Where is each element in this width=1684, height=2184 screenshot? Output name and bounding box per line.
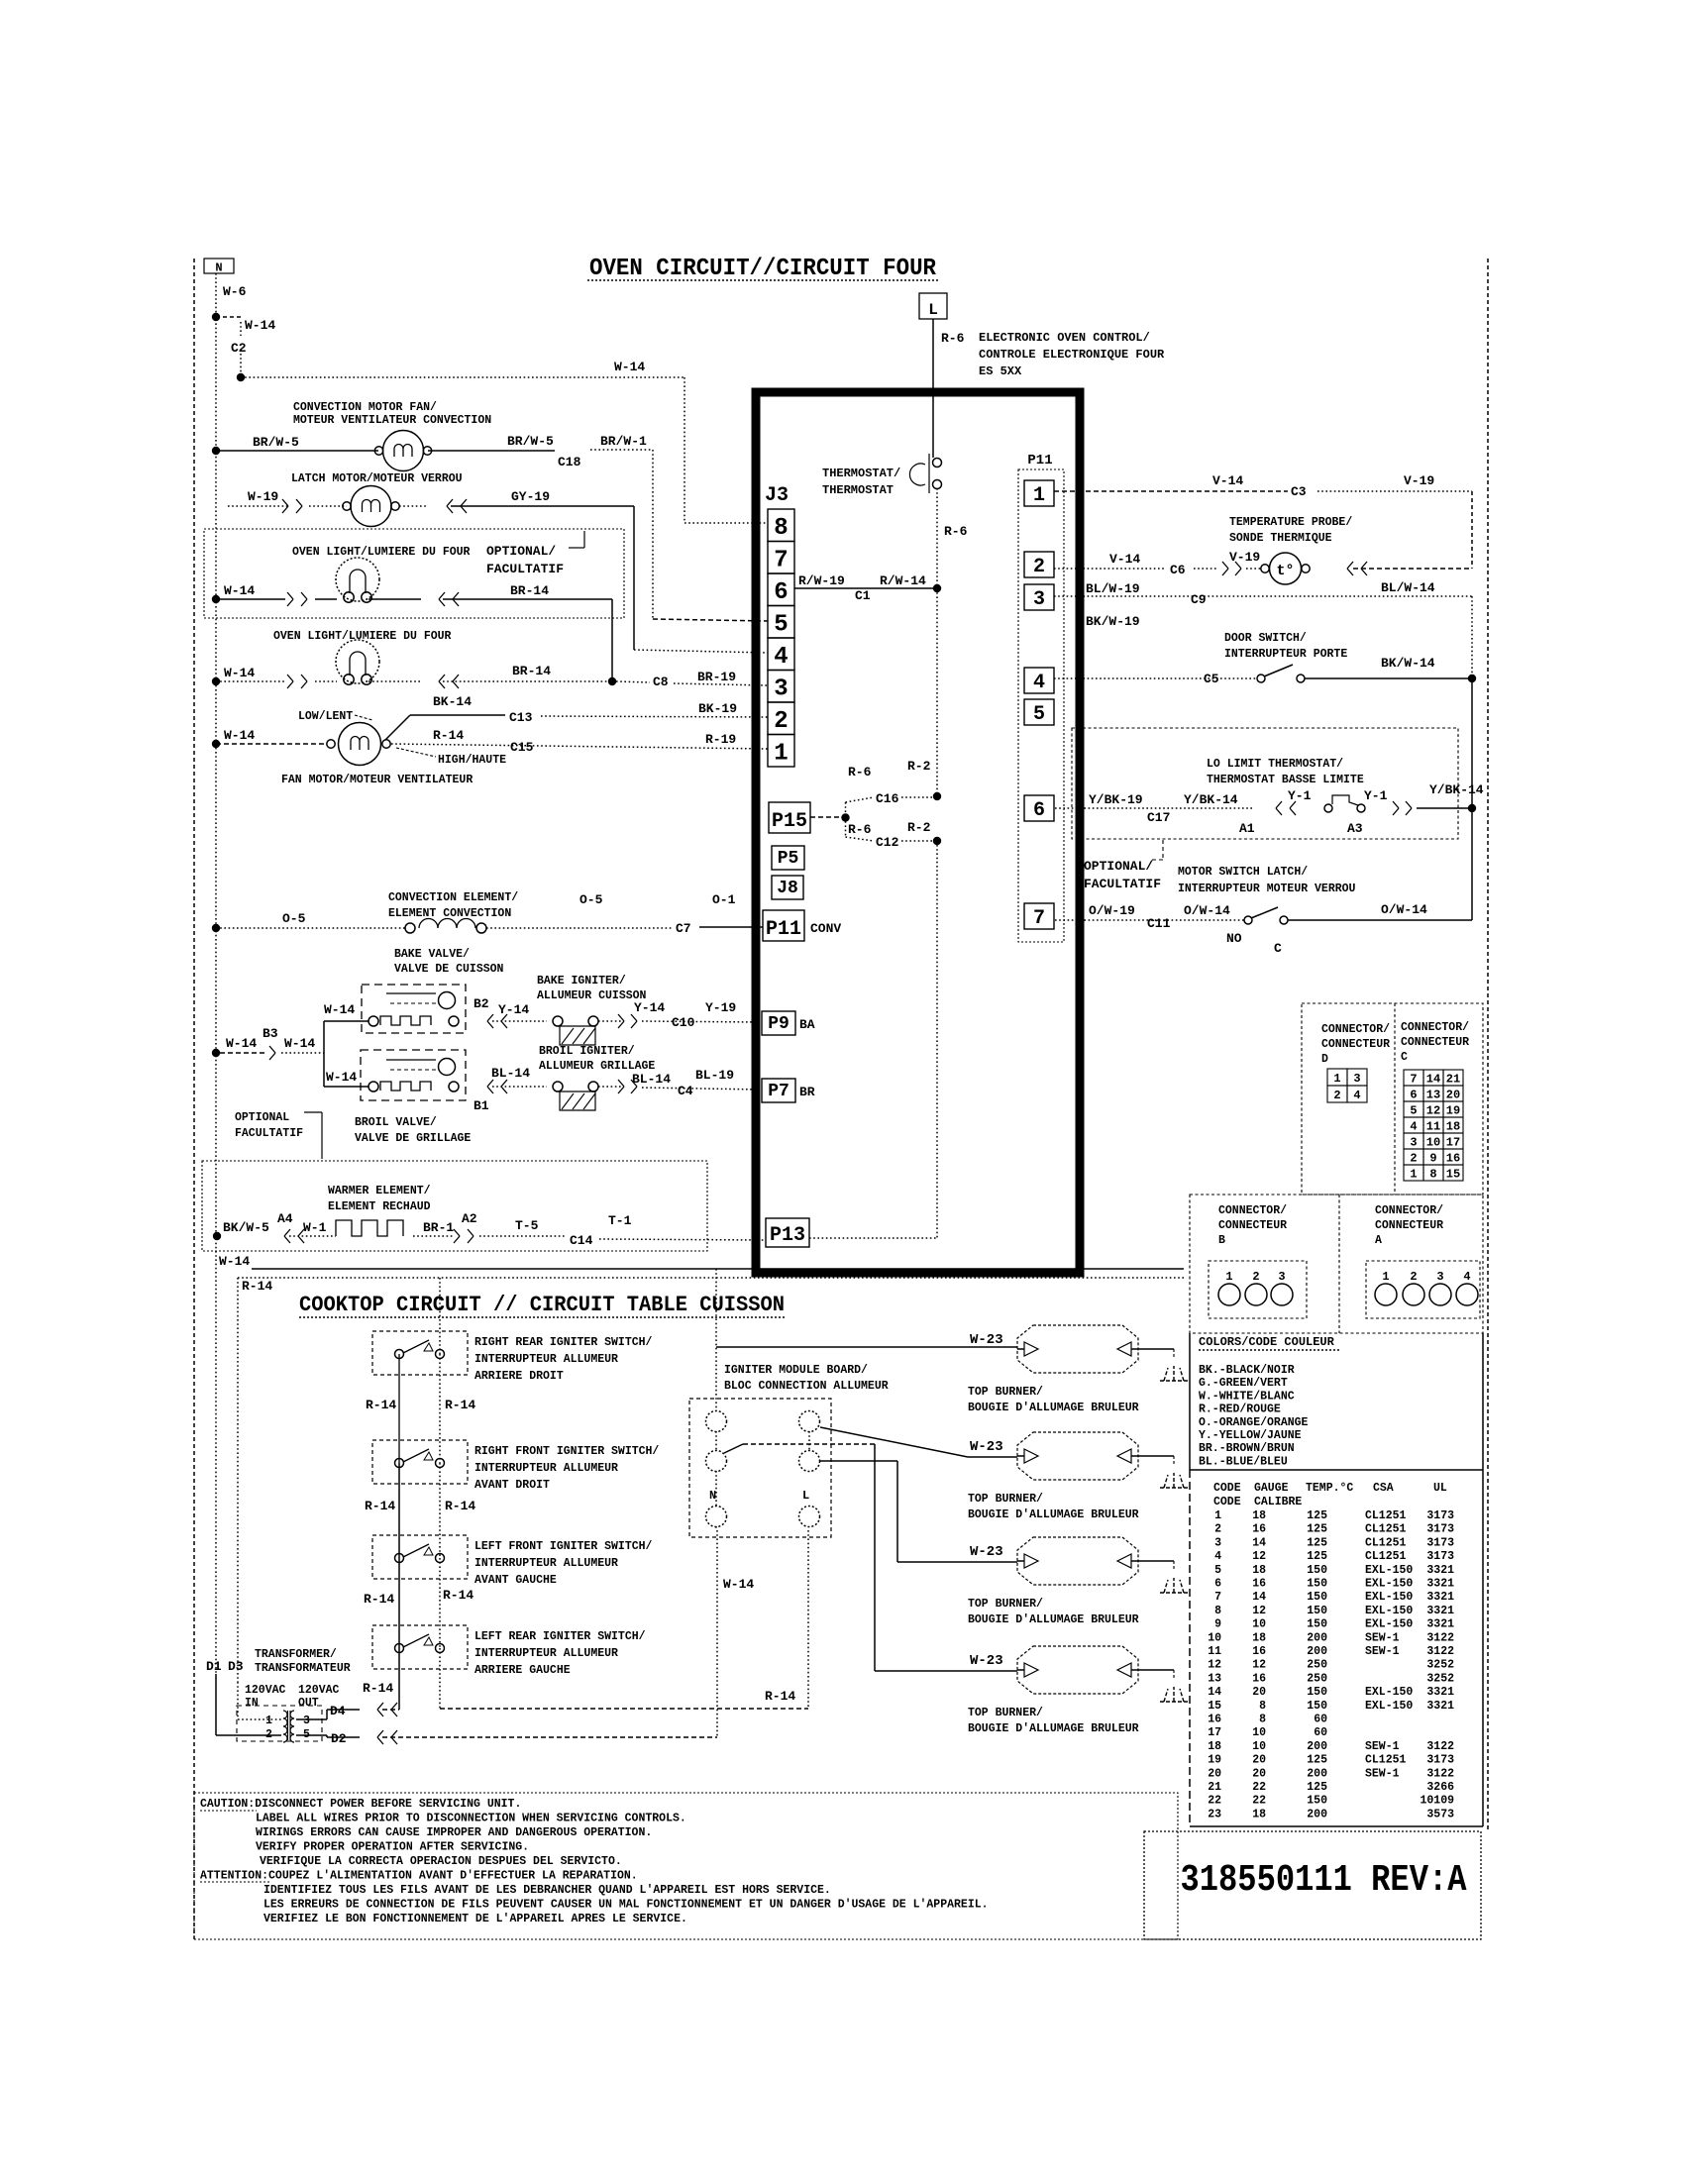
- svg-text:WIRINGS ERRORS CAN CAUSE IMPRO: WIRINGS ERRORS CAN CAUSE IMPROPER AND DA…: [256, 1826, 652, 1839]
- svg-text:3173: 3173: [1426, 1536, 1454, 1549]
- svg-text:V-14: V-14: [1212, 473, 1243, 488]
- svg-text:5: 5: [1214, 1564, 1221, 1577]
- svg-text:CONTROLE ELECTRONIQUE FOUR: CONTROLE ELECTRONIQUE FOUR: [979, 348, 1165, 362]
- svg-text:INTERRUPTEUR PORTE: INTERRUPTEUR PORTE: [1224, 648, 1347, 661]
- svg-text:200: 200: [1307, 1740, 1327, 1753]
- svg-text:Y.-YELLOW/JAUNE: Y.-YELLOW/JAUNE: [1199, 1429, 1302, 1442]
- svg-text:BK/W-14: BK/W-14: [1381, 656, 1435, 671]
- svg-text:VERIFY PROPER OPERATION AFTER: VERIFY PROPER OPERATION AFTER SERVICING.: [256, 1841, 529, 1854]
- svg-text:IDENTIFIEZ TOUS LES FILS AVANT: IDENTIFIEZ TOUS LES FILS AVANT DE LES DE…: [263, 1884, 831, 1897]
- svg-text:W-14: W-14: [224, 666, 255, 680]
- svg-text:13: 13: [1426, 1089, 1440, 1102]
- svg-text:O.-ORANGE/ORANGE: O.-ORANGE/ORANGE: [1199, 1416, 1309, 1429]
- svg-text:A: A: [1375, 1234, 1382, 1247]
- svg-text:DOOR SWITCH/: DOOR SWITCH/: [1224, 632, 1307, 645]
- svg-text:ELECTRONIC OVEN CONTROL/: ELECTRONIC OVEN CONTROL/: [979, 331, 1150, 345]
- svg-text:Y-1: Y-1: [1288, 788, 1312, 803]
- svg-text:23: 23: [1208, 1808, 1221, 1820]
- svg-text:C18: C18: [558, 455, 581, 469]
- svg-text:3573: 3573: [1426, 1808, 1454, 1820]
- svg-text:N: N: [709, 1489, 716, 1503]
- svg-text:Y-14: Y-14: [634, 1000, 665, 1015]
- svg-text:CODE: CODE: [1213, 1482, 1241, 1495]
- svg-text:125: 125: [1307, 1754, 1327, 1767]
- svg-text:W-14: W-14: [326, 1070, 357, 1085]
- svg-text:B3: B3: [263, 1026, 278, 1041]
- svg-text:3321: 3321: [1426, 1700, 1454, 1713]
- svg-text:LEFT REAR IGNITER SWITCH/: LEFT REAR IGNITER SWITCH/: [474, 1630, 646, 1643]
- svg-text:12: 12: [1252, 1659, 1266, 1672]
- svg-text:Y/BK-19: Y/BK-19: [1089, 792, 1143, 807]
- svg-text:W-6: W-6: [223, 284, 247, 299]
- svg-text:B2: B2: [474, 996, 489, 1011]
- svg-text:22: 22: [1252, 1781, 1266, 1794]
- svg-text:250: 250: [1307, 1672, 1327, 1685]
- svg-text:ELEMENT RECHAUD: ELEMENT RECHAUD: [328, 1200, 431, 1213]
- svg-text:200: 200: [1307, 1631, 1327, 1644]
- svg-text:ARRIERE GAUCHE: ARRIERE GAUCHE: [474, 1664, 571, 1677]
- svg-text:Y-19: Y-19: [705, 1000, 736, 1015]
- svg-text:BK.-BLACK/NOIR: BK.-BLACK/NOIR: [1199, 1364, 1295, 1377]
- svg-text:18: 18: [1252, 1631, 1266, 1644]
- svg-text:B1: B1: [474, 1098, 489, 1113]
- svg-text:W-14: W-14: [245, 318, 275, 333]
- svg-text:7: 7: [1410, 1073, 1417, 1087]
- svg-text:9: 9: [1429, 1152, 1436, 1166]
- svg-text:G.-GREEN/VERT: G.-GREEN/VERT: [1199, 1377, 1288, 1390]
- svg-text:2: 2: [1410, 1152, 1417, 1166]
- svg-text:C16: C16: [876, 791, 899, 806]
- svg-text:A4: A4: [277, 1211, 293, 1226]
- svg-text:CONNECTEUR: CONNECTEUR: [1401, 1036, 1469, 1049]
- svg-text:150: 150: [1307, 1578, 1327, 1591]
- svg-text:BR.-BROWN/BRUN: BR.-BROWN/BRUN: [1199, 1442, 1295, 1455]
- svg-text:20: 20: [1252, 1686, 1266, 1699]
- svg-text:LEFT FRONT IGNITER SWITCH/: LEFT FRONT IGNITER SWITCH/: [474, 1540, 653, 1553]
- svg-text:125: 125: [1307, 1536, 1327, 1549]
- svg-text:NO: NO: [1226, 931, 1242, 946]
- svg-text:O-1: O-1: [712, 892, 736, 907]
- svg-text:3266: 3266: [1426, 1781, 1454, 1794]
- svg-text:12: 12: [1426, 1104, 1440, 1118]
- svg-text:10: 10: [1208, 1631, 1221, 1644]
- svg-text:10: 10: [1252, 1618, 1266, 1631]
- svg-text:N: N: [215, 261, 222, 275]
- svg-text:W-23: W-23: [970, 1439, 1003, 1455]
- svg-text:Y-14: Y-14: [498, 1002, 529, 1017]
- svg-text:L: L: [928, 301, 938, 319]
- svg-text:BAKE VALVE/: BAKE VALVE/: [394, 948, 470, 961]
- svg-text:3321: 3321: [1426, 1686, 1454, 1699]
- svg-text:2: 2: [1214, 1523, 1221, 1536]
- svg-text:CSA: CSA: [1373, 1482, 1394, 1495]
- svg-text:P13: P13: [770, 1224, 805, 1247]
- svg-text:AVANT GAUCHE: AVANT GAUCHE: [474, 1574, 557, 1587]
- svg-text:W-19: W-19: [248, 489, 278, 504]
- svg-text:TEMPERATURE PROBE/: TEMPERATURE PROBE/: [1229, 516, 1352, 529]
- svg-text:1: 1: [774, 741, 788, 768]
- svg-text:BOUGIE D'ALLUMAGE BRULEUR: BOUGIE D'ALLUMAGE BRULEUR: [968, 1402, 1139, 1414]
- svg-text:6: 6: [1214, 1578, 1221, 1591]
- svg-text:8: 8: [1429, 1168, 1436, 1182]
- svg-text:P15: P15: [772, 810, 807, 833]
- svg-text:CONVECTION MOTOR FAN/: CONVECTION MOTOR FAN/: [293, 401, 437, 414]
- svg-text:D4: D4: [330, 1704, 346, 1718]
- svg-text:L: L: [802, 1489, 809, 1503]
- svg-text:TOP BURNER/: TOP BURNER/: [968, 1707, 1043, 1719]
- svg-text:BL-14: BL-14: [632, 1072, 671, 1087]
- svg-text:P5: P5: [778, 849, 799, 869]
- svg-text:3: 3: [774, 676, 788, 703]
- svg-text:BR/W-5: BR/W-5: [507, 434, 554, 449]
- svg-text:12: 12: [1208, 1659, 1221, 1672]
- svg-text:12: 12: [1252, 1605, 1266, 1617]
- svg-text:C8: C8: [653, 675, 669, 689]
- svg-text:7: 7: [1033, 907, 1045, 930]
- svg-text:C6: C6: [1170, 563, 1186, 577]
- svg-text:1: 1: [1382, 1270, 1389, 1284]
- svg-text:R-14: R-14: [242, 1279, 272, 1294]
- svg-text:P11: P11: [766, 918, 801, 941]
- svg-text:16: 16: [1252, 1578, 1266, 1591]
- svg-text:C13: C13: [509, 710, 533, 725]
- svg-text:ATTENTION:COUPEZ L'ALIMENTATIO: ATTENTION:COUPEZ L'ALIMENTATION AVANT D'…: [200, 1870, 638, 1883]
- svg-text:16: 16: [1252, 1672, 1266, 1685]
- svg-text:LES ERREURS DE CONNECTION DE F: LES ERREURS DE CONNECTION DE FILS PEUVEN…: [263, 1899, 989, 1912]
- svg-text:THERMOSTAT/: THERMOSTAT/: [822, 467, 900, 480]
- svg-text:C3: C3: [1291, 484, 1307, 499]
- svg-text:C5: C5: [1204, 672, 1219, 686]
- svg-text:EXL-150: EXL-150: [1365, 1591, 1413, 1604]
- svg-text:3: 3: [1436, 1270, 1443, 1284]
- svg-text:R/W-14: R/W-14: [880, 573, 926, 588]
- svg-text:R-6: R-6: [848, 765, 872, 780]
- svg-text:D: D: [1321, 1053, 1328, 1066]
- svg-text:3122: 3122: [1426, 1645, 1454, 1658]
- svg-text:R-6: R-6: [941, 331, 965, 346]
- svg-text:C7: C7: [676, 921, 691, 936]
- svg-text:O/W-19: O/W-19: [1089, 903, 1135, 918]
- svg-text:2: 2: [1033, 556, 1045, 578]
- svg-text:1: 1: [1410, 1168, 1417, 1182]
- svg-text:TOP BURNER/: TOP BURNER/: [968, 1386, 1043, 1399]
- svg-text:125: 125: [1307, 1781, 1327, 1794]
- svg-text:150: 150: [1307, 1605, 1327, 1617]
- svg-text:R-14: R-14: [433, 728, 464, 743]
- svg-text:LABEL ALL WIRES PRIOR TO DISCO: LABEL ALL WIRES PRIOR TO DISCONNECTION W…: [256, 1813, 686, 1825]
- svg-text:6: 6: [1410, 1089, 1417, 1102]
- svg-text:BR/W-1: BR/W-1: [600, 434, 647, 449]
- svg-text:EXL-150: EXL-150: [1365, 1700, 1413, 1713]
- svg-text:20: 20: [1252, 1754, 1266, 1767]
- svg-text:CONNECTOR/: CONNECTOR/: [1321, 1023, 1390, 1036]
- svg-text:CONNECTEUR: CONNECTEUR: [1321, 1038, 1390, 1051]
- svg-text:C12: C12: [876, 835, 899, 850]
- svg-text:BK/W-19: BK/W-19: [1086, 614, 1140, 629]
- svg-text:IGNITER MODULE BOARD/: IGNITER MODULE BOARD/: [724, 1364, 868, 1377]
- svg-text:W-1: W-1: [303, 1220, 327, 1235]
- svg-text:5: 5: [774, 612, 788, 639]
- svg-text:FAN MOTOR/MOTEUR VENTILATEUR: FAN MOTOR/MOTEUR VENTILATEUR: [281, 774, 473, 786]
- svg-text:150: 150: [1307, 1700, 1327, 1713]
- svg-text:CONVECTION ELEMENT/: CONVECTION ELEMENT/: [388, 891, 518, 904]
- svg-text:BL-19: BL-19: [695, 1068, 734, 1083]
- svg-text:R-14: R-14: [445, 1398, 475, 1412]
- svg-text:A1: A1: [1239, 821, 1255, 836]
- svg-text:TRANSFORMER/: TRANSFORMER/: [255, 1648, 337, 1661]
- svg-text:THERMOSTAT BASSE LIMITE: THERMOSTAT BASSE LIMITE: [1207, 774, 1364, 786]
- svg-text:R-6: R-6: [848, 822, 872, 837]
- svg-text:INTERRUPTEUR ALLUMEUR: INTERRUPTEUR ALLUMEUR: [474, 1557, 618, 1570]
- svg-text:t°: t°: [1276, 563, 1294, 579]
- svg-text:W-14: W-14: [284, 1036, 315, 1051]
- svg-text:19: 19: [1208, 1754, 1221, 1767]
- svg-text:16: 16: [1252, 1523, 1266, 1536]
- svg-text:60: 60: [1314, 1714, 1327, 1726]
- svg-text:22: 22: [1208, 1795, 1221, 1808]
- svg-text:C: C: [1274, 941, 1282, 956]
- svg-text:11: 11: [1426, 1120, 1440, 1134]
- svg-text:6: 6: [774, 579, 788, 606]
- svg-text:CONNECTOR/: CONNECTOR/: [1218, 1204, 1287, 1217]
- svg-text:P9: P9: [768, 1014, 789, 1034]
- svg-text:COOKTOP CIRCUIT // CIRCUIT TAB: COOKTOP CIRCUIT // CIRCUIT TABLE CUISSON: [299, 1293, 785, 1317]
- svg-text:FACULTATIF: FACULTATIF: [235, 1127, 303, 1140]
- svg-text:3: 3: [1033, 588, 1045, 611]
- svg-text:4: 4: [1033, 672, 1045, 694]
- svg-text:Y/BK-14: Y/BK-14: [1429, 782, 1484, 797]
- svg-text:3122: 3122: [1426, 1631, 1454, 1644]
- svg-text:CL1251: CL1251: [1365, 1550, 1407, 1563]
- svg-text:BK/W-5: BK/W-5: [223, 1220, 269, 1235]
- svg-text:R.-RED/ROUGE: R.-RED/ROUGE: [1199, 1404, 1281, 1416]
- svg-text:B: B: [1218, 1234, 1225, 1247]
- svg-text:CL1251: CL1251: [1365, 1754, 1407, 1767]
- svg-text:6: 6: [1033, 799, 1045, 822]
- svg-text:10: 10: [1252, 1740, 1266, 1753]
- svg-text:3: 3: [1353, 1072, 1360, 1086]
- svg-text:18: 18: [1208, 1740, 1221, 1753]
- svg-text:D3: D3: [228, 1659, 244, 1674]
- svg-text:120VAC: 120VAC: [245, 1684, 286, 1697]
- svg-text:3252: 3252: [1426, 1672, 1454, 1685]
- svg-text:C1: C1: [855, 588, 871, 603]
- svg-text:W.-WHITE/BLANC: W.-WHITE/BLANC: [1199, 1390, 1295, 1403]
- svg-text:TOP BURNER/: TOP BURNER/: [968, 1598, 1043, 1611]
- svg-text:150: 150: [1307, 1795, 1327, 1808]
- svg-text:3173: 3173: [1426, 1550, 1454, 1563]
- svg-text:J3: J3: [765, 484, 789, 507]
- svg-text:OUT: OUT: [298, 1697, 319, 1710]
- svg-text:ES 5XX: ES 5XX: [979, 364, 1022, 378]
- svg-text:R-19: R-19: [705, 732, 736, 747]
- svg-text:3321: 3321: [1426, 1605, 1454, 1617]
- svg-text:7: 7: [774, 548, 788, 574]
- svg-text:C14: C14: [570, 1233, 593, 1248]
- svg-text:INTERRUPTEUR ALLUMEUR: INTERRUPTEUR ALLUMEUR: [474, 1462, 618, 1475]
- svg-text:3321: 3321: [1426, 1578, 1454, 1591]
- svg-text:BOUGIE D'ALLUMAGE BRULEUR: BOUGIE D'ALLUMAGE BRULEUR: [968, 1613, 1139, 1626]
- svg-text:4: 4: [774, 644, 788, 671]
- svg-text:COLORS/CODE COULEUR: COLORS/CODE COULEUR: [1199, 1335, 1335, 1349]
- svg-text:BLOC CONNECTION ALLUMEUR: BLOC CONNECTION ALLUMEUR: [724, 1380, 889, 1393]
- svg-text:SEW-1: SEW-1: [1365, 1631, 1400, 1644]
- svg-text:GAUGE: GAUGE: [1254, 1482, 1289, 1495]
- svg-text:18: 18: [1252, 1564, 1266, 1577]
- svg-text:CALIBRE: CALIBRE: [1254, 1496, 1302, 1508]
- svg-text:CONV: CONV: [810, 921, 841, 936]
- svg-text:THERMOSTAT: THERMOSTAT: [822, 483, 894, 497]
- svg-text:3321: 3321: [1426, 1564, 1454, 1577]
- svg-text:MOTEUR VENTILATEUR CONVECTION: MOTEUR VENTILATEUR CONVECTION: [293, 414, 491, 427]
- svg-text:BK-19: BK-19: [698, 701, 737, 716]
- svg-text:ARRIERE DROIT: ARRIERE DROIT: [474, 1370, 564, 1383]
- svg-text:W-23: W-23: [970, 1332, 1003, 1348]
- svg-text:WARMER ELEMENT/: WARMER ELEMENT/: [328, 1185, 431, 1197]
- svg-text:10109: 10109: [1420, 1795, 1454, 1808]
- svg-text:J8: J8: [777, 879, 798, 898]
- svg-text:V-19: V-19: [1229, 550, 1260, 565]
- svg-text:W-14: W-14: [226, 1036, 257, 1051]
- svg-text:T-5: T-5: [515, 1218, 539, 1233]
- svg-text:R-14: R-14: [366, 1398, 396, 1412]
- svg-text:18: 18: [1252, 1808, 1266, 1820]
- svg-text:TEMP.°C: TEMP.°C: [1306, 1482, 1353, 1495]
- svg-text:R-14: R-14: [364, 1592, 394, 1607]
- svg-text:150: 150: [1307, 1686, 1327, 1699]
- svg-text:BAKE IGNITER/: BAKE IGNITER/: [537, 975, 626, 988]
- svg-text:O/W-14: O/W-14: [1184, 903, 1230, 918]
- svg-text:BR-14: BR-14: [512, 664, 551, 678]
- svg-text:3: 3: [303, 1715, 310, 1727]
- svg-text:W-23: W-23: [970, 1653, 1003, 1669]
- svg-text:18: 18: [1252, 1509, 1266, 1522]
- svg-text:10: 10: [1252, 1726, 1266, 1739]
- svg-text:5: 5: [1410, 1104, 1417, 1118]
- svg-text:EXL-150: EXL-150: [1365, 1578, 1413, 1591]
- svg-text:13: 13: [1208, 1672, 1221, 1685]
- svg-text:UL: UL: [1433, 1482, 1447, 1495]
- svg-text:TRANSFORMATEUR: TRANSFORMATEUR: [255, 1662, 351, 1675]
- svg-text:18: 18: [1446, 1120, 1460, 1134]
- svg-text:4: 4: [1214, 1550, 1221, 1563]
- svg-text:W-14: W-14: [219, 1254, 250, 1269]
- svg-text:BOUGIE D'ALLUMAGE BRULEUR: BOUGIE D'ALLUMAGE BRULEUR: [968, 1722, 1139, 1735]
- svg-text:A2: A2: [462, 1211, 477, 1226]
- svg-text:5: 5: [1033, 703, 1045, 726]
- svg-text:200: 200: [1307, 1645, 1327, 1658]
- svg-text:OPTIONAL: OPTIONAL: [235, 1111, 289, 1124]
- svg-text:R-14: R-14: [765, 1689, 795, 1704]
- svg-text:BL-14: BL-14: [491, 1066, 530, 1081]
- svg-text:BK-14: BK-14: [433, 694, 472, 709]
- svg-text:3173: 3173: [1426, 1754, 1454, 1767]
- svg-text:VERIFIEZ LE BON FONCTIONNEMENT: VERIFIEZ LE BON FONCTIONNEMENT DE L'APPA…: [263, 1913, 687, 1925]
- svg-text:SEW-1: SEW-1: [1365, 1767, 1400, 1780]
- svg-text:O-5: O-5: [282, 911, 306, 926]
- svg-text:2: 2: [1252, 1270, 1259, 1284]
- svg-text:CL1251: CL1251: [1365, 1536, 1407, 1549]
- svg-text:VALVE DE CUISSON: VALVE DE CUISSON: [394, 963, 504, 976]
- svg-text:3: 3: [1278, 1270, 1285, 1284]
- svg-text:IN: IN: [245, 1697, 259, 1710]
- svg-text:C: C: [1401, 1051, 1408, 1064]
- svg-text:RIGHT REAR IGNITER SWITCH/: RIGHT REAR IGNITER SWITCH/: [474, 1336, 653, 1349]
- svg-text:W-14: W-14: [614, 360, 645, 374]
- svg-text:INTERRUPTEUR MOTEUR VERROU: INTERRUPTEUR MOTEUR VERROU: [1178, 883, 1356, 895]
- svg-text:P7: P7: [768, 1082, 789, 1101]
- svg-text:CAUTION:DISCONNECT POWER BEFOR: CAUTION:DISCONNECT POWER BEFORE SERVICIN…: [200, 1798, 521, 1811]
- svg-text:BL.-BLUE/BLEU: BL.-BLUE/BLEU: [1199, 1455, 1288, 1468]
- svg-text:14: 14: [1208, 1686, 1221, 1699]
- svg-text:OVEN CIRCUIT//CIRCUIT FOUR: OVEN CIRCUIT//CIRCUIT FOUR: [589, 256, 937, 282]
- svg-text:OPTIONAL/: OPTIONAL/: [1084, 859, 1153, 874]
- svg-text:16: 16: [1252, 1645, 1266, 1658]
- svg-text:BR-1: BR-1: [423, 1220, 454, 1235]
- svg-text:W-14: W-14: [324, 1002, 355, 1017]
- svg-text:1: 1: [1225, 1270, 1232, 1284]
- svg-text:ALLUMEUR CUISSON: ALLUMEUR CUISSON: [537, 989, 647, 1002]
- svg-text:2: 2: [1410, 1270, 1417, 1284]
- svg-text:C4: C4: [678, 1084, 693, 1098]
- svg-text:8: 8: [1259, 1714, 1266, 1726]
- svg-text:TOP BURNER/: TOP BURNER/: [968, 1493, 1043, 1506]
- svg-text:1: 1: [1214, 1509, 1221, 1522]
- svg-text:R-6: R-6: [944, 524, 968, 539]
- svg-text:MOTOR SWITCH LATCH/: MOTOR SWITCH LATCH/: [1178, 866, 1308, 879]
- svg-text:1: 1: [1033, 484, 1045, 507]
- svg-text:10: 10: [1426, 1136, 1440, 1150]
- svg-text:BROIL IGNITER/: BROIL IGNITER/: [539, 1045, 635, 1058]
- svg-text:150: 150: [1307, 1564, 1327, 1577]
- svg-text:BROIL VALVE/: BROIL VALVE/: [355, 1116, 437, 1129]
- svg-text:D1: D1: [206, 1659, 222, 1674]
- svg-text:FACULTATIF: FACULTATIF: [486, 562, 564, 576]
- svg-text:C11: C11: [1147, 916, 1171, 931]
- svg-text:21: 21: [1446, 1073, 1460, 1087]
- svg-text:150: 150: [1307, 1591, 1327, 1604]
- svg-text:CONNECTOR/: CONNECTOR/: [1375, 1204, 1443, 1217]
- svg-text:R-14: R-14: [363, 1681, 393, 1696]
- svg-text:3122: 3122: [1426, 1767, 1454, 1780]
- svg-text:125: 125: [1307, 1523, 1327, 1536]
- svg-text:R-2: R-2: [907, 820, 931, 835]
- svg-text:CL1251: CL1251: [1365, 1509, 1407, 1522]
- svg-text:14: 14: [1252, 1591, 1266, 1604]
- svg-text:EXL-150: EXL-150: [1365, 1605, 1413, 1617]
- svg-text:200: 200: [1307, 1767, 1327, 1780]
- svg-text:C10: C10: [672, 1015, 695, 1030]
- svg-text:EXL-150: EXL-150: [1365, 1618, 1413, 1631]
- svg-text:20: 20: [1208, 1767, 1221, 1780]
- svg-text:O-5: O-5: [579, 892, 603, 907]
- svg-text:2: 2: [1333, 1089, 1340, 1102]
- svg-text:15: 15: [1446, 1168, 1460, 1182]
- svg-text:19: 19: [1446, 1104, 1460, 1118]
- svg-text:8: 8: [1259, 1700, 1266, 1713]
- svg-text:OPTIONAL/: OPTIONAL/: [486, 544, 556, 559]
- svg-text:BR-14: BR-14: [510, 583, 549, 598]
- svg-text:3122: 3122: [1426, 1740, 1454, 1753]
- svg-text:RIGHT FRONT IGNITER SWITCH/: RIGHT FRONT IGNITER SWITCH/: [474, 1445, 659, 1458]
- svg-text:17: 17: [1208, 1726, 1221, 1739]
- svg-text:3321: 3321: [1426, 1618, 1454, 1631]
- svg-text:2: 2: [774, 708, 788, 735]
- svg-text:60: 60: [1314, 1726, 1327, 1739]
- svg-text:CONNECTEUR: CONNECTEUR: [1218, 1219, 1287, 1232]
- svg-text:GY-19: GY-19: [511, 489, 550, 504]
- svg-text:CODE: CODE: [1213, 1496, 1241, 1508]
